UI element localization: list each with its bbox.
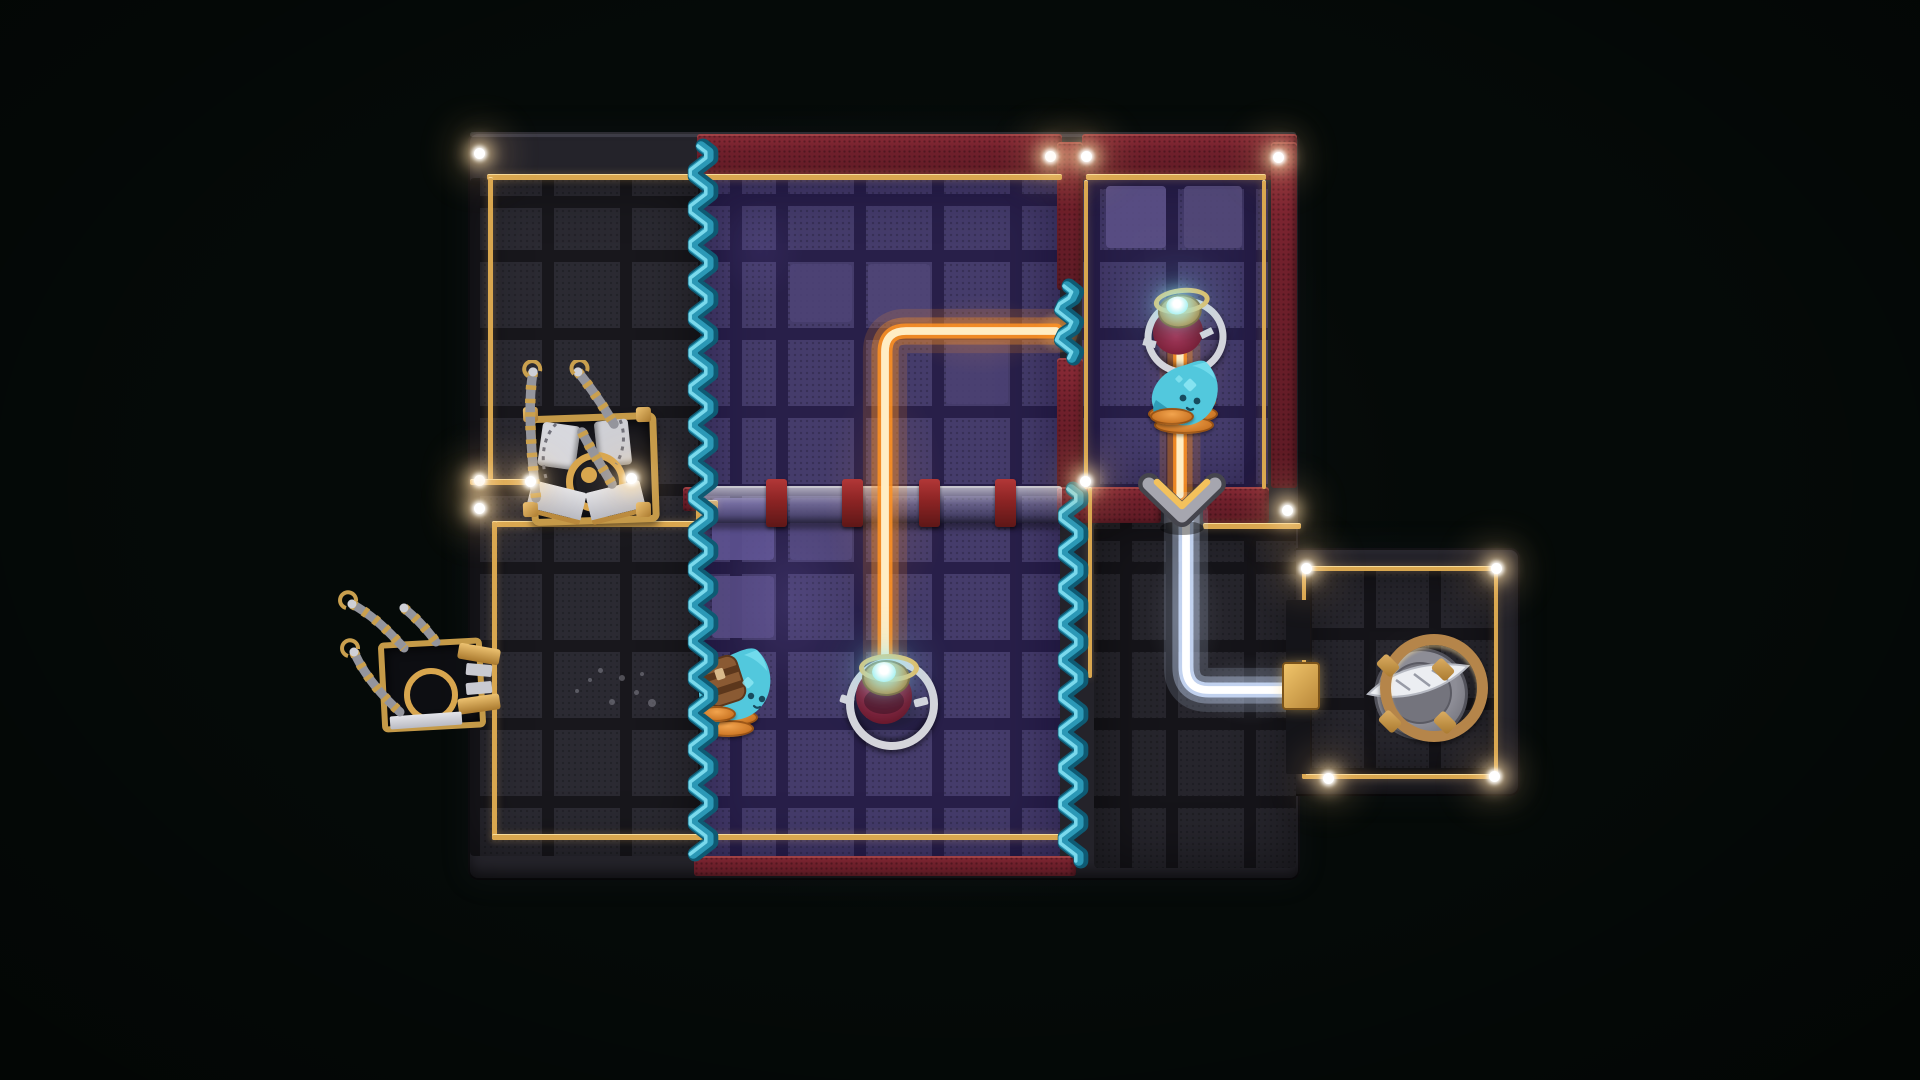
corner-light xyxy=(1273,152,1284,163)
corner-light xyxy=(1080,476,1091,487)
receiver-pedestal-bottom[interactable] xyxy=(830,640,940,750)
drill-bits-icon xyxy=(500,360,670,535)
corner-light xyxy=(1045,151,1056,162)
spring-coil-front xyxy=(1150,408,1194,425)
vault-fan-wheel[interactable] xyxy=(1350,620,1510,760)
corner-light xyxy=(1081,151,1092,162)
entity-layer xyxy=(0,0,1920,1080)
corner-light xyxy=(1489,771,1500,782)
drill-crate-machine-top[interactable] xyxy=(500,360,670,535)
corner-light xyxy=(1323,773,1334,784)
corner-light xyxy=(474,148,485,159)
corner-light xyxy=(474,475,485,486)
beam-port-block[interactable] xyxy=(1282,662,1320,710)
corner-light xyxy=(626,473,637,484)
energy-gem xyxy=(872,662,896,682)
corner-light xyxy=(1282,505,1293,516)
corner-light xyxy=(1491,563,1502,574)
drill-bits-icon xyxy=(320,580,510,740)
spring-coil-front xyxy=(698,706,736,722)
annex-wall-segment xyxy=(1286,600,1310,660)
drill-crate-machine-left[interactable] xyxy=(320,580,510,740)
corner-light xyxy=(474,503,485,514)
exit-arrow[interactable] xyxy=(1136,470,1236,542)
blob-character-right[interactable] xyxy=(1142,352,1232,436)
game-scene xyxy=(0,0,1920,1080)
corner-light xyxy=(1301,563,1312,574)
corner-light xyxy=(525,476,536,487)
annex-wall-segment xyxy=(1286,708,1310,774)
